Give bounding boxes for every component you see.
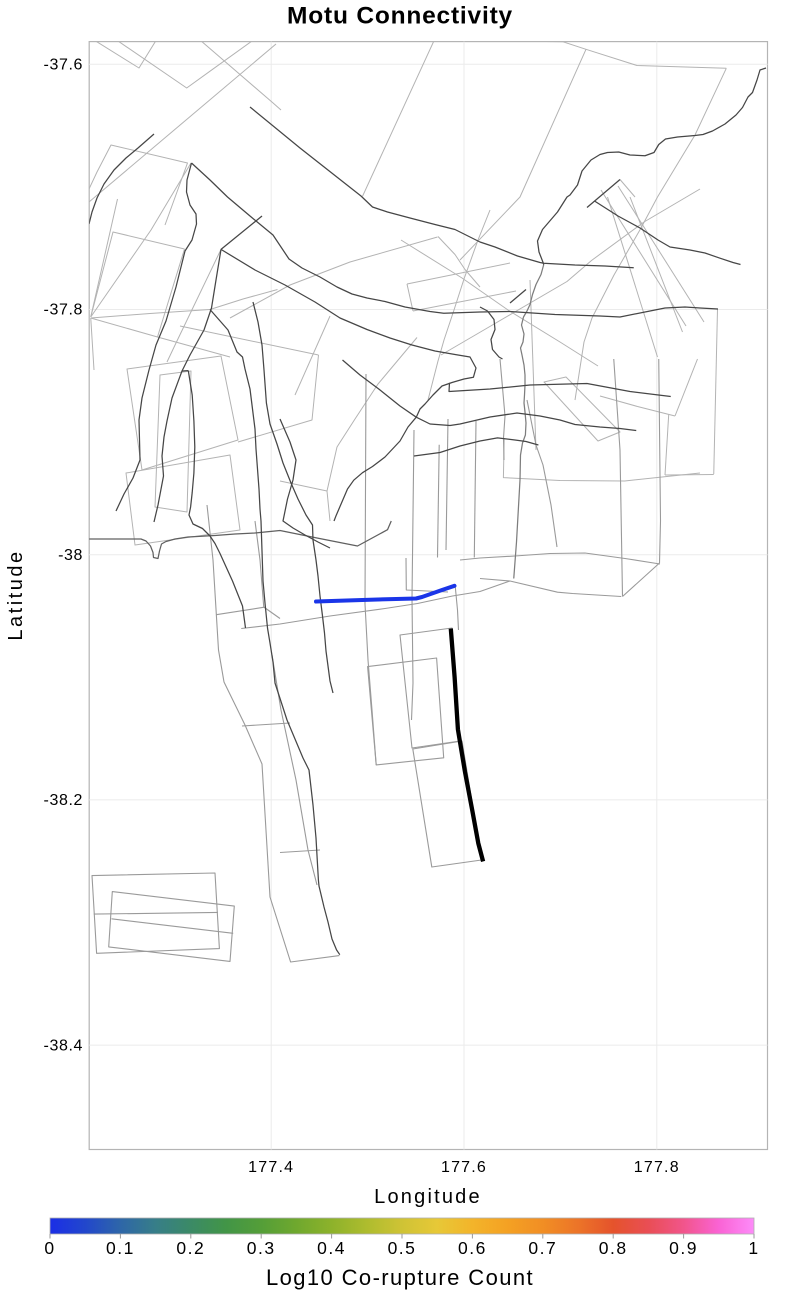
svg-text:-38: -38 xyxy=(58,547,83,564)
svg-text:-37.6: -37.6 xyxy=(44,57,83,74)
svg-text:0.1: 0.1 xyxy=(106,1238,135,1258)
svg-text:1: 1 xyxy=(748,1238,759,1258)
svg-text:0: 0 xyxy=(44,1238,55,1258)
svg-text:0.2: 0.2 xyxy=(176,1238,205,1258)
svg-text:-38.4: -38.4 xyxy=(44,1037,83,1054)
svg-text:177.6: 177.6 xyxy=(441,1159,487,1176)
svg-text:0.9: 0.9 xyxy=(669,1238,698,1258)
svg-text:0.5: 0.5 xyxy=(388,1238,417,1258)
svg-text:-38.2: -38.2 xyxy=(44,792,83,809)
svg-text:0.7: 0.7 xyxy=(528,1238,557,1258)
svg-text:-37.8: -37.8 xyxy=(44,302,83,319)
svg-text:0.8: 0.8 xyxy=(599,1238,628,1258)
svg-text:Motu Connectivity: Motu Connectivity xyxy=(287,3,513,30)
svg-text:Latitude: Latitude xyxy=(5,549,27,640)
svg-text:177.4: 177.4 xyxy=(248,1159,294,1176)
svg-text:0.6: 0.6 xyxy=(458,1238,487,1258)
svg-text:0.3: 0.3 xyxy=(247,1238,276,1258)
svg-text:Longitude: Longitude xyxy=(374,1186,482,1208)
svg-text:0.4: 0.4 xyxy=(317,1238,346,1258)
svg-text:Log10 Co-rupture Count: Log10 Co-rupture Count xyxy=(266,1265,534,1290)
svg-text:177.8: 177.8 xyxy=(634,1159,680,1176)
